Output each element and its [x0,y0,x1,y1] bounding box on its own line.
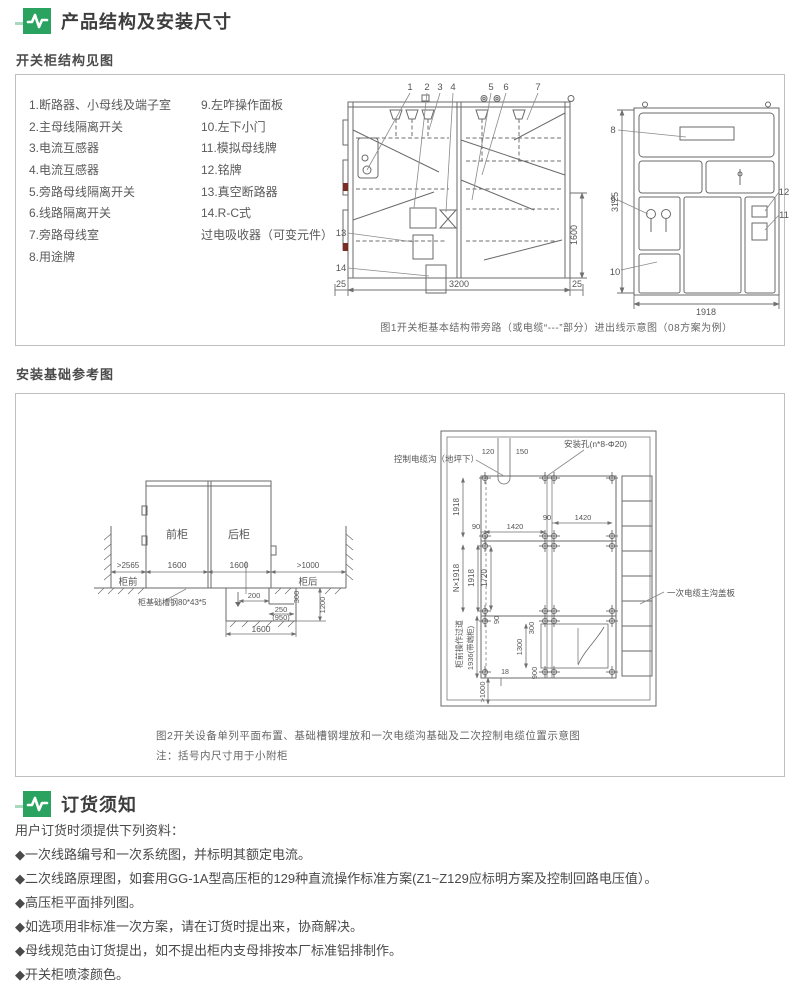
figure1-panel: 1.断路器、小母线及端子室 2.主母线隔离开关 3.电流互感器 4.电流互感器 … [15,74,785,346]
order-bullet-4: ◆如选项用非标准一次方案，请在订货时提出来，协商解决。 [15,920,657,934]
part-item-5: 5.旁路母线隔离开关 [29,182,171,204]
part-item-13: 13.真空断路器 [201,182,333,204]
rear-side-label: 柜后 [298,576,318,588]
callout-4: 4 [450,82,455,93]
fig1-side-leaders [348,93,538,276]
pit-dim-200: 200 [248,591,261,600]
pit-dim-1600: 1600 [252,624,271,634]
section1-header: 产品结构及安装尺寸 [15,7,232,35]
section1-subtitle: 开关柜结构见图 [16,50,114,69]
part-item-9: 9.左咋操作面板 [201,95,333,117]
plan-dim-90a: 90 [472,522,480,531]
section2-title: 安装基础参考图 [16,364,114,383]
order-bullet-3: ◆高压柜平面排列图。 [15,896,657,910]
front-side-label: 柜前 [118,576,137,588]
dim-1600: 1600 [569,225,579,245]
fig1-side-red-accents [343,183,348,251]
width-1600-a: 1600 [168,560,187,570]
section3-header: 订货须知 [15,790,137,818]
order-bullet-1: ◆一次线路编号和一次系统图，并标明其额定电流。 [15,848,657,862]
plan-dim-120: 120 [482,447,495,456]
fig2-section-structure [94,481,353,627]
fig2-section-labels: 前柜 后柜 >2565 柜前 1600 1600 >1000 柜后 柜基础槽钢8… [117,527,327,634]
figure2-note: 注：括号内尺寸用于小附柜 [156,748,288,763]
dim-25-right: 25 [572,279,582,289]
part-item-12: 12.铭牌 [201,160,333,182]
section3-title: 订货须知 [61,791,137,817]
callout-6: 6 [503,82,508,93]
parts-list-left: 1.断路器、小母线及端子室 2.主母线隔离开关 3.电流互感器 4.电流互感器 … [29,95,171,269]
fig1-side-view [343,95,574,293]
callout-5: 5 [488,82,493,93]
plan-dim-150: 150 [516,447,529,456]
dim-3125: 3125 [610,192,620,212]
rear-cabinet-label: 后柜 [228,528,250,541]
ordering-info: 用户订货时须提供下列资料： ◆一次线路编号和一次系统图，并标明其额定电流。 ◆二… [15,824,657,986]
plan-dim-n1918: N×1918 [452,563,461,592]
control-trench-label: 控制电缆沟（地坪下） [394,454,479,464]
width-1600-b: 1600 [230,560,249,570]
figure1-caption: 图1开关柜基本结构带旁路（或电缆“---”部分）进出线示意图（08方案为例） [334,319,779,334]
aisle-label: 柜前操作过道 [454,620,464,668]
callout-10: 10 [610,267,621,278]
pulse-icon-2 [15,790,53,818]
parts-list-right: 9.左咋操作面板 10.左下小门 11.模拟母线牌 12.铭牌 13.真空断路器… [201,95,333,247]
part-item-3: 3.电流互感器 [29,138,171,160]
figure2-panel: 前柜 后柜 >2565 柜前 1600 1600 >1000 柜后 柜基础槽钢8… [15,393,785,777]
plan-dim-1000: >1000 [478,681,487,702]
pit-dim-300: 300 [292,591,301,604]
callout-1: 1 [407,82,412,93]
section1-title: 产品结构及安装尺寸 [61,8,232,34]
catalog-page: 产品结构及安装尺寸 开关柜结构见图 1.断路器、小母线及端子室 2.主母线隔离开… [0,0,800,986]
order-bullet-2: ◆二次线路原理图，如套用GG-1A型高压柜的129种直流操作标准方案(Z1~Z1… [15,872,657,886]
mounting-hole-label: 安装孔(n*8-Φ20) [564,439,627,449]
fig2-plan-dims [463,450,664,704]
fig1-front-leaders [618,130,779,270]
plan-dim-300: 300 [527,622,536,635]
part-item-1: 1.断路器、小母线及端子室 [29,95,171,117]
figure1-drawing: 1 2 3 4 5 6 7 13 14 25 3200 [334,80,789,317]
pit-dim-1200: 1200 [318,597,327,614]
callout-7: 7 [535,82,540,93]
plan-dim-1936: 1936(带端柜) [465,625,475,670]
order-bullet-6: ◆开关柜喷漆颜色。 [15,968,657,982]
fig1-front-view [634,102,779,295]
front-clearance: >2565 [117,561,140,570]
fig1-front-callouts: 8 9 10 12 11 [610,125,789,278]
part-item-14: 14.R-C式 [201,203,333,225]
rear-clearance: >1000 [297,561,320,570]
callout-13: 13 [336,228,347,239]
callout-14: 14 [336,263,347,274]
part-item-6: 6.线路隔离开关 [29,203,171,225]
callout-12: 12 [779,187,789,198]
fig2-mounting-holes [479,472,618,678]
fig2-plan-labels: 安装孔(n*8-Φ20) 控制电缆沟（地坪下） 120 150 1918 90 … [394,439,736,703]
pulse-icon [15,7,53,35]
order-intro: 用户订货时须提供下列资料： [15,824,657,838]
fig1-side-dim-labels: 25 3200 25 1600 [336,225,582,289]
dim-3200: 3200 [449,279,469,289]
plan-dim-90b: 90 [543,513,551,522]
part-item-10: 10.左下小门 [201,117,333,139]
part-item-8: 8.用途牌 [29,247,171,269]
part-item-14b: 过电吸收器（可变元件） [201,225,333,247]
figure2-drawing: 前柜 后柜 >2565 柜前 1600 1600 >1000 柜后 柜基础槽钢8… [26,406,774,724]
callout-11: 11 [779,210,789,221]
plan-dim-90c: 90 [492,616,501,624]
dim-25-left: 25 [336,279,346,289]
plan-dim-1918a: 1918 [452,498,461,516]
callout-3: 3 [437,82,442,93]
plan-dim-900: 900 [530,667,539,680]
part-item-7: 7.旁路母线室 [29,225,171,247]
part-item-2: 2.主母线隔离开关 [29,117,171,139]
order-bullet-5: ◆母线规范由订货提出，如不提出柜内支母排按本厂标准铝排制作。 [15,944,657,958]
dim-1918: 1918 [696,307,716,317]
callout-8: 8 [610,125,615,136]
plan-dim-1420b: 1420 [575,513,592,522]
figure2-caption: 图2开关设备单列平面布置、基础槽钢埋放和一次电缆沟基础及二次控制电缆位置示意图 [156,728,580,743]
front-cabinet-label: 前柜 [166,527,188,541]
plan-dim-18: 18 [501,669,509,676]
channel-steel-label: 柜基础槽钢80*43*5 [138,597,207,607]
fig1-side-busbars [356,119,562,241]
callout-2: 2 [424,82,429,93]
plan-dim-1300: 1300 [515,639,524,656]
cable-cover-label: 一次电缆主沟盖板 [667,588,736,598]
plan-dim-1420a: 1420 [507,522,524,531]
part-item-11: 11.模拟母线牌 [201,138,333,160]
plan-dim-1918b: 1918 [467,569,476,587]
part-item-4: 4.电流互感器 [29,160,171,182]
plan-dim-1720: 1720 [480,569,489,587]
pit-dim-950: (950) [272,613,290,622]
